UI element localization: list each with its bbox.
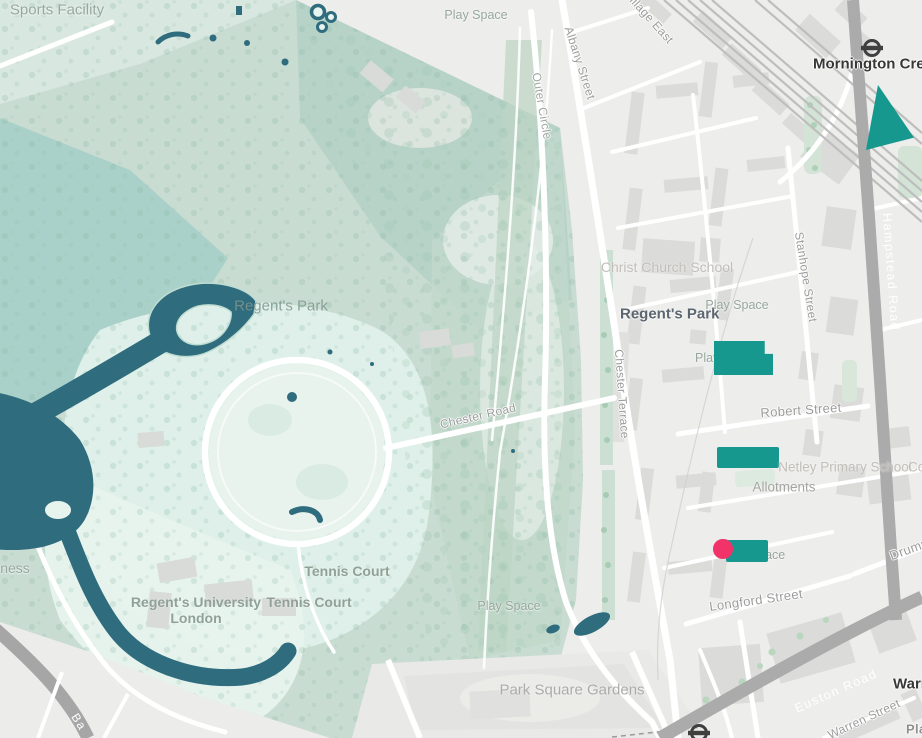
highlight-play-space-block-north[interactable]: [714, 341, 773, 375]
label-mornington-crescent-station: Mornington Crescent: [813, 56, 922, 73]
label-co-partial: Co: [908, 460, 922, 475]
map-canvas[interactable]: [0, 0, 922, 738]
inner-circle-gardens: [205, 360, 389, 544]
label-regents-park-district: Regent's Park: [620, 306, 719, 323]
label-play-partial-corner: Play Space: [906, 722, 922, 737]
map-viewport[interactable]: Play Space Play Space Sports Facility Pl…: [0, 0, 922, 738]
highlight-estate-block-middle[interactable]: [717, 447, 779, 468]
label-warren-street-station: Warren Street: [893, 676, 922, 693]
label-business-partial: Business: [0, 560, 30, 576]
selected-location-marker[interactable]: [713, 539, 733, 559]
